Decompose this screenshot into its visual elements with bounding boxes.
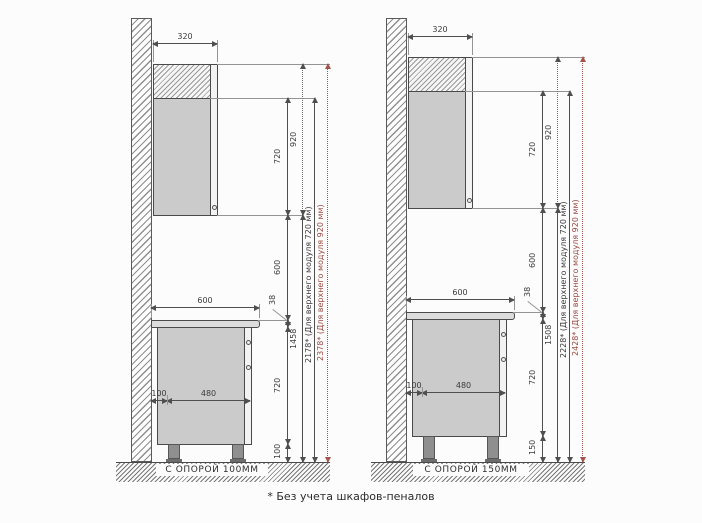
dim-line-base-depth — [422, 392, 505, 393]
door-handle-icon — [467, 198, 472, 203]
dim-label-countertop-thickness: 38 — [267, 292, 279, 308]
door-handle-icon — [212, 205, 217, 210]
base-cabinet-body — [412, 319, 507, 437]
dim-label-counter-width: 600 — [151, 296, 259, 305]
dim-line-base-depth — [167, 400, 250, 401]
dim-label-total-720: 2178* (Для верхнего модуля 720 мм) — [303, 115, 315, 455]
floor-label: С ОПОРОЙ 100ММ — [156, 464, 268, 476]
cabinet-leg-foot — [485, 459, 501, 462]
dim-label-legs: 100 — [272, 440, 284, 462]
extension-line-cabinet-top — [217, 64, 330, 65]
diagram-support-150: 320 720 600 38 720 150 920 1508 2228* (Д… — [371, 0, 585, 523]
diagram-support-100: 320 720 600 38 720 100 920 1458 2178* (Д… — [116, 0, 330, 523]
cabinet-leg — [232, 444, 244, 459]
dim-label-base-body: 720 — [527, 319, 539, 436]
dim-line-total-920 — [327, 64, 328, 462]
dim-label-floor-to-upper: 1508 — [543, 208, 555, 462]
wall-cabinet-extension-920 — [408, 57, 466, 92]
dim-label-base-body: 720 — [272, 327, 284, 444]
dim-label-counter-width: 600 — [406, 288, 514, 297]
wall-hatch — [386, 18, 407, 462]
dim-line-back-gap — [406, 392, 422, 393]
dim-label-base-depth: 480 — [167, 389, 250, 398]
dim-label-upper-module: 720 — [527, 91, 539, 208]
dim-label-legs: 150 — [527, 434, 539, 460]
hinge-icon — [246, 340, 251, 345]
dim-label-total-920: 2378* (Для верхнего модуля 920 мм) — [315, 108, 327, 458]
hinge-icon — [501, 332, 506, 337]
cabinet-leg-foot — [421, 459, 437, 462]
wall-cabinet-body — [408, 91, 466, 209]
dim-label-base-depth: 480 — [422, 381, 505, 390]
dim-line-back-gap — [151, 400, 167, 401]
dim-label-floor-to-upper: 1458 — [288, 215, 300, 462]
wall-cabinet-extension-920 — [153, 64, 211, 99]
cabinet-leg-foot — [230, 459, 246, 462]
hinge-icon — [246, 365, 251, 370]
dim-label-countertop-thickness: 38 — [522, 284, 534, 300]
dim-label-top-width: 320 — [408, 25, 472, 34]
wall-cabinet-door — [210, 64, 218, 216]
cabinet-leg — [168, 444, 180, 459]
dim-label-upper-module-tall: 920 — [543, 57, 555, 208]
dim-line-top-width — [408, 36, 472, 37]
dim-line-counter-width — [406, 299, 514, 300]
dim-line-top-width — [153, 43, 217, 44]
wall-cabinet-door — [465, 57, 473, 209]
dim-label-total-720: 2228* (Для верхнего модуля 720 мм) — [558, 110, 570, 450]
dim-label-upper-module-tall: 920 — [288, 64, 300, 215]
wall-cabinet-body — [153, 98, 211, 216]
cabinet-leg — [423, 436, 435, 459]
hinge-icon — [501, 357, 506, 362]
dim-label-total-920: 2428* (Для верхнего модуля 920 мм) — [570, 103, 582, 453]
extension-line-cabinet-top — [472, 57, 585, 58]
dim-label-upper-module: 720 — [272, 98, 284, 215]
dim-label-top-width: 320 — [153, 32, 217, 41]
footnote-caption: * Без учета шкафов-пеналов — [0, 490, 702, 503]
base-cabinet-body — [157, 327, 252, 445]
drawing-canvas: 320 720 600 38 720 100 920 1458 2178* (Д… — [0, 0, 702, 523]
dim-line-counter-width — [151, 307, 259, 308]
floor-label: С ОПОРОЙ 150ММ — [413, 464, 529, 476]
cabinet-leg — [487, 436, 499, 459]
dim-line-total-920 — [582, 57, 583, 462]
cabinet-leg-foot — [166, 459, 182, 462]
